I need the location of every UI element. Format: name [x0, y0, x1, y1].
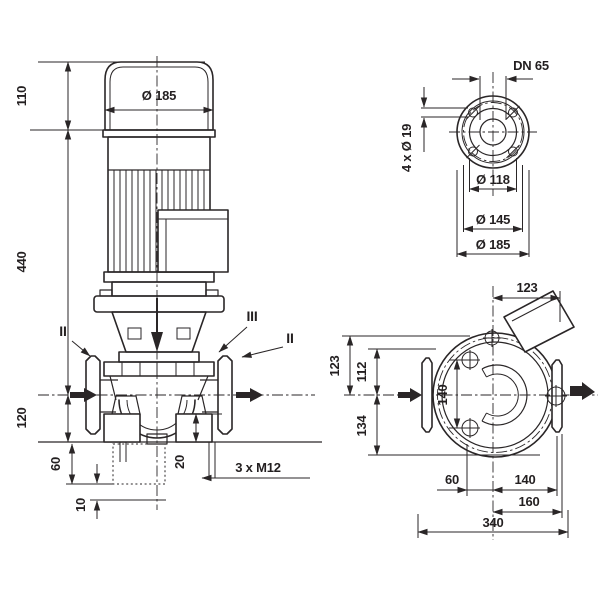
plan-suction-flange	[422, 358, 432, 432]
plan-inlet-arrow	[398, 388, 422, 402]
dim-label-height-mid: 440	[14, 251, 29, 272]
label-thread-m12: 3 x M12	[235, 460, 281, 475]
dim-label-base-depth: 60	[48, 457, 63, 471]
dn-dimension	[452, 76, 533, 120]
dim-label-bottom-left: 60	[445, 472, 459, 487]
bolt-hole-dimension	[421, 87, 468, 152]
dim-label-height-base: 120	[14, 407, 29, 428]
dim-label-bottom-flange: 160	[518, 494, 539, 509]
dim-label-bolt-circle: Ø 145	[476, 212, 510, 227]
dim-label-bottom-right: 140	[514, 472, 535, 487]
dim-label-port-distance: 140	[435, 384, 450, 405]
technical-drawing-page: Ø 185 110 440 120 60 10 20 3 x M12 II II…	[0, 0, 600, 600]
dim-label-outer-diameter: Ø 185	[476, 237, 510, 252]
pump-dimensional-drawing: Ø 185 110 440 120 60 10 20 3 x M12 II II…	[0, 0, 600, 600]
dim-label-motor-diameter: Ø 185	[142, 88, 176, 103]
dim-label-raised-face: Ø 118	[476, 172, 510, 187]
dim-label-left-lower: 134	[354, 414, 369, 436]
dim-label-height-top: 110	[14, 86, 29, 106]
motor-adapter	[94, 272, 224, 312]
section-label-mid: III	[246, 308, 257, 324]
dim-label-left-inner: 112	[354, 362, 369, 382]
plan-view: 123 123 112 134 140 60 140 160 340	[327, 280, 598, 540]
dim-label-foot-thickness: 20	[172, 455, 187, 469]
label-bolt-holes: 4 x Ø 19	[399, 124, 414, 172]
plan-discharge-port	[545, 385, 567, 407]
dim-label-base-offset: 10	[73, 498, 88, 512]
section-label-right: II	[286, 330, 293, 346]
dim-label-overall-length: 340	[482, 515, 503, 530]
m12-studs	[120, 442, 215, 478]
terminal-box	[158, 210, 228, 272]
dim-label-top-offset: 123	[516, 280, 537, 295]
shaft-arrow	[151, 298, 163, 352]
plan-terminal-box	[504, 291, 574, 352]
inlet-flow-arrow	[70, 388, 97, 402]
plan-pump-body	[433, 329, 557, 457]
flange-view: DN 65 4 x Ø 19 Ø 118 Ø 145 Ø 185	[399, 58, 549, 257]
section-label-left: II	[59, 323, 66, 339]
front-view: Ø 185 110 440 120 60 10 20 3 x M12 II II…	[14, 56, 322, 519]
outlet-flow-arrow	[236, 388, 263, 402]
label-nominal-bore: DN 65	[513, 58, 549, 73]
plan-outlet-arrow	[570, 382, 595, 400]
dim-label-left-outer: 123	[327, 355, 342, 376]
